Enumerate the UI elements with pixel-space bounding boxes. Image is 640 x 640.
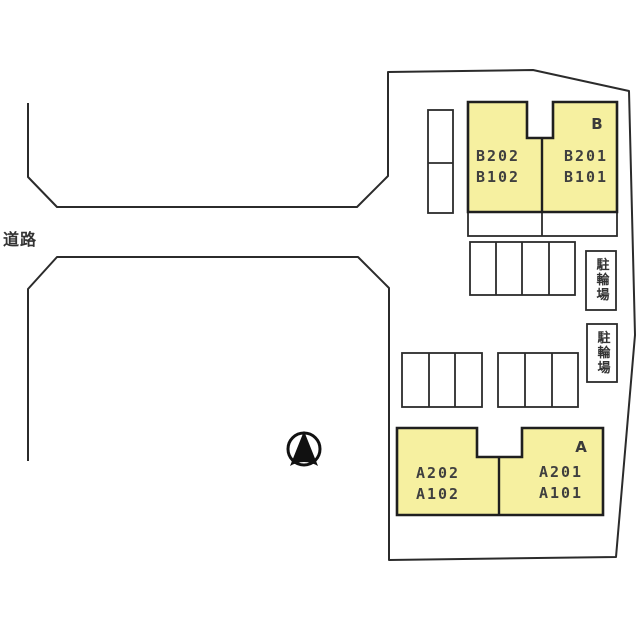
building-b-left-unit-labels: B202 B102 bbox=[476, 146, 520, 188]
parking-row-4cell bbox=[470, 242, 575, 295]
parking-strip-2cell bbox=[428, 110, 453, 213]
site-plan: 道路 B202 B102 B201 B101 B A202 A102 A201 … bbox=[0, 0, 640, 640]
building-a-right-unit-labels: A201 A101 bbox=[539, 462, 583, 504]
unit-label: A102 bbox=[416, 484, 460, 505]
unit-label: B201 bbox=[564, 146, 608, 167]
parking-group-3cell-right bbox=[498, 353, 578, 407]
unit-label: B202 bbox=[476, 146, 520, 167]
bike-parking-label-2: 駐輪場 bbox=[596, 331, 609, 376]
unit-label: A201 bbox=[539, 462, 583, 483]
unit-label: A202 bbox=[416, 463, 460, 484]
road-label: 道路 bbox=[3, 226, 37, 250]
building-b-porch bbox=[468, 212, 617, 236]
unit-label: B101 bbox=[564, 167, 608, 188]
north-arrow-icon bbox=[288, 431, 320, 466]
building-b-right-unit-labels: B201 B101 bbox=[564, 146, 608, 188]
parking-group-3cell-left bbox=[402, 353, 482, 407]
building-b-name: B bbox=[591, 115, 602, 133]
site-plan-drawing bbox=[0, 0, 640, 640]
unit-label: B102 bbox=[476, 167, 520, 188]
building-a-left-unit-labels: A202 A102 bbox=[416, 463, 460, 505]
building-a-name: A bbox=[575, 438, 587, 456]
bike-parking-label-1: 駐輪場 bbox=[595, 258, 608, 303]
unit-label: A101 bbox=[539, 483, 583, 504]
